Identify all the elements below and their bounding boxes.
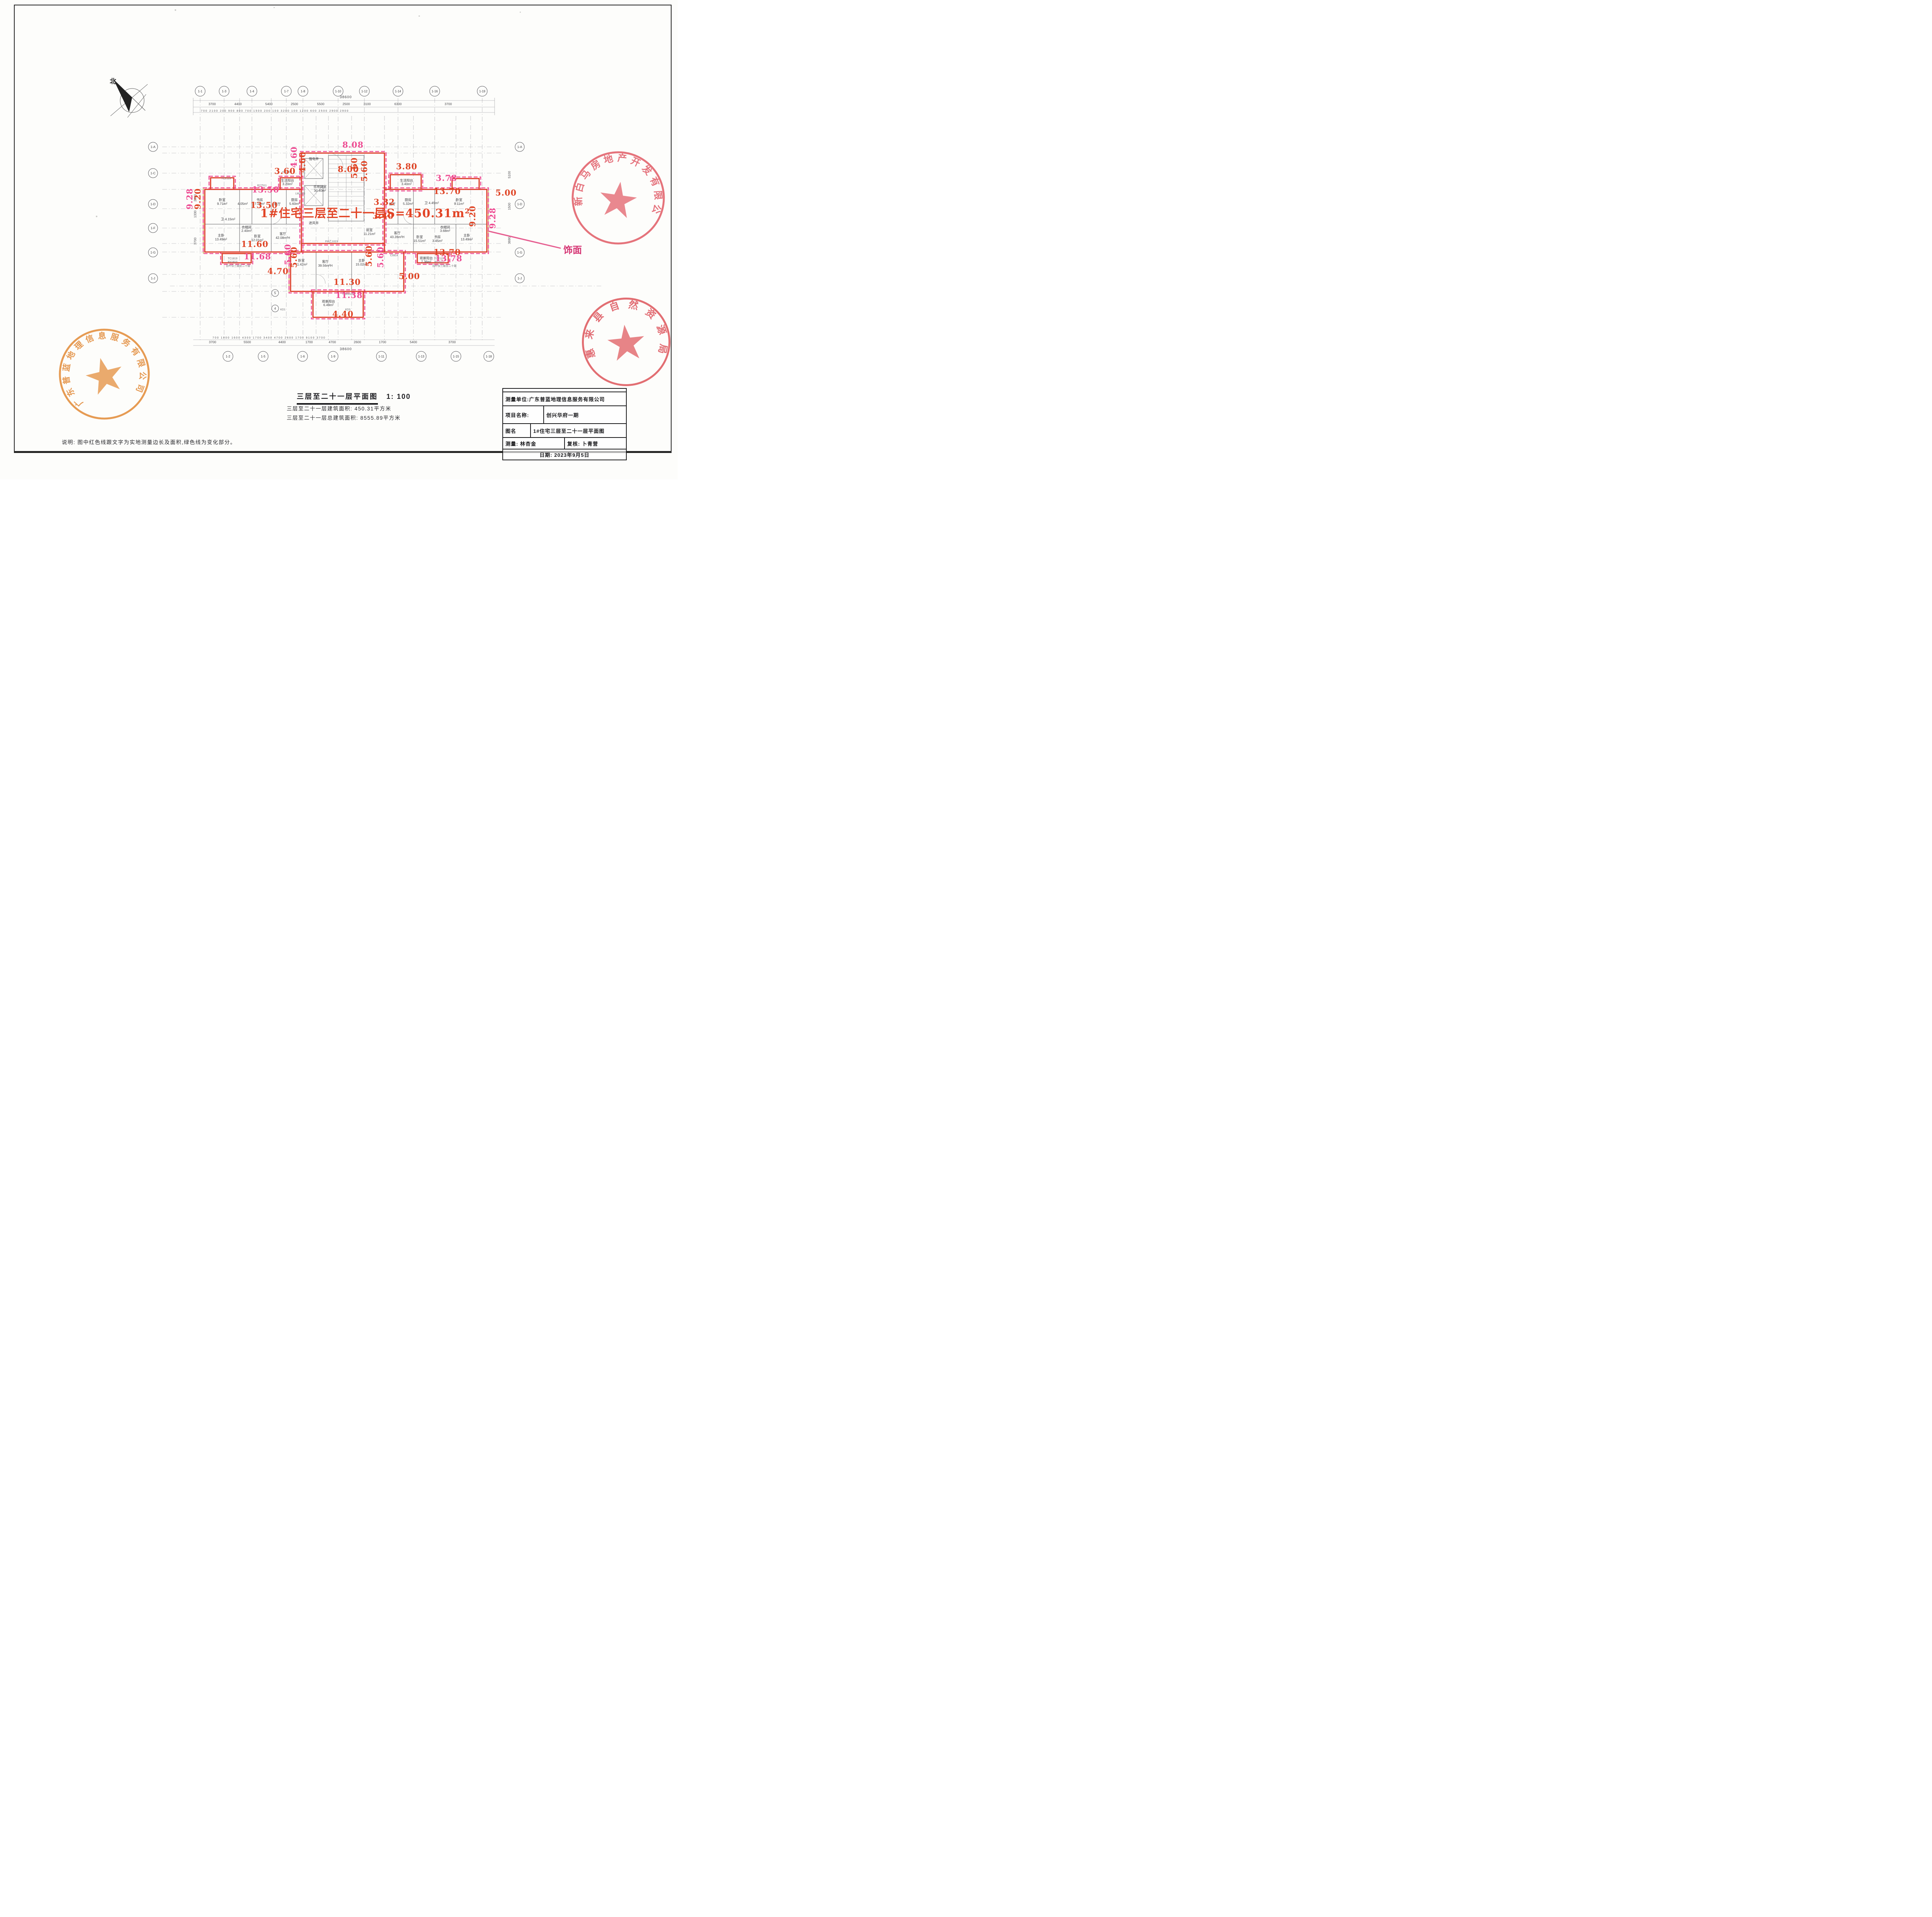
svg-text:13.70: 13.70 <box>434 186 461 196</box>
north-label: 北 <box>110 78 116 85</box>
svg-text:3700: 3700 <box>445 102 452 106</box>
svg-text:3.68m²: 3.68m² <box>440 229 451 233</box>
svg-text:15.51m²: 15.51m² <box>413 239 425 243</box>
scanned-floorplan-document: 北 <box>0 0 678 479</box>
svg-text:5500: 5500 <box>317 102 325 106</box>
svg-text:3.45m²: 3.45m² <box>432 239 443 243</box>
svg-text:13.78: 13.78 <box>435 254 463 263</box>
svg-text:KD1: KD1 <box>280 308 286 311</box>
svg-text:9.20: 9.20 <box>193 188 202 209</box>
svg-text:1-6: 1-6 <box>300 355 305 358</box>
svg-text:1700: 1700 <box>379 340 386 344</box>
svg-text:主卧: 主卧 <box>463 233 470 237</box>
svg-text:卫 4.45m²: 卫 4.45m² <box>424 201 439 205</box>
svg-text:1-C: 1-C <box>151 172 156 175</box>
svg-text:百叶仅三层至二十层: 百叶仅三层至二十层 <box>226 264 250 267</box>
svg-text:1-A: 1-A <box>517 145 522 149</box>
scan-speck <box>520 12 521 13</box>
svg-text:6.49m²: 6.49m² <box>323 303 334 307</box>
svg-text:2600: 2600 <box>354 340 361 344</box>
svg-text:9.71m²: 9.71m² <box>217 202 228 206</box>
svg-text:5.00: 5.00 <box>399 271 420 281</box>
scan-speck <box>175 9 176 11</box>
svg-text:5400: 5400 <box>265 102 273 106</box>
svg-text:1-J: 1-J <box>517 277 522 280</box>
svg-text:4.70: 4.70 <box>267 266 289 276</box>
svg-text:1-4: 1-4 <box>250 90 254 93</box>
svg-text:进风井: 进风井 <box>309 221 319 225</box>
svg-text:客厅: 客厅 <box>322 260 329 264</box>
svg-text:3.32: 3.32 <box>374 197 395 207</box>
developer-company-stamp: 新白马房地产开发有限公司 <box>561 141 675 255</box>
svg-text:1-7: 1-7 <box>284 90 289 93</box>
svg-text:3100: 3100 <box>364 102 371 106</box>
svg-text:4.60: 4.60 <box>298 152 307 173</box>
dimension-texts: 3700440054002500550025003100630037003700… <box>193 102 511 344</box>
svg-text:3700: 3700 <box>193 237 197 245</box>
svg-text:卧室: 卧室 <box>456 198 463 202</box>
stamp-star-icon <box>597 179 639 219</box>
svg-text:1-G: 1-G <box>517 251 522 254</box>
svg-text:5.60: 5.60 <box>376 247 385 268</box>
svg-text:LM2423: LM2423 <box>295 192 305 195</box>
svg-text:9.28: 9.28 <box>488 208 497 229</box>
measured-by: 测量: 林杏金 <box>503 438 564 449</box>
svg-text:8.08: 8.08 <box>342 140 364 150</box>
plan-title-line: 三层至二十一层平面图 1: 100 <box>297 391 411 405</box>
svg-text:1-14: 1-14 <box>395 90 401 93</box>
scan-speck <box>96 216 97 217</box>
svg-text:1-1: 1-1 <box>198 90 202 93</box>
floor-area-line: 三层至二十一层建筑面积: 450.31平方米 <box>287 404 401 414</box>
date: 日期: 2023年9月5日 <box>503 449 626 460</box>
svg-text:7.36m²: 7.36m² <box>421 260 432 264</box>
svg-text:1-8: 1-8 <box>301 90 305 93</box>
svg-text:厨房: 厨房 <box>405 198 411 202</box>
svg-text:百叶仅三层至二十层: 百叶仅三层至二十层 <box>432 264 457 267</box>
svg-text:TC1819: TC1819 <box>228 257 238 260</box>
svg-text:13.49m²: 13.49m² <box>215 237 227 241</box>
svg-text:1-D: 1-D <box>151 203 156 206</box>
svg-text:2500: 2500 <box>291 102 298 106</box>
svg-text:1700: 1700 <box>306 340 313 344</box>
svg-text:1-15: 1-15 <box>453 355 459 358</box>
svg-text:11.38: 11.38 <box>335 290 363 300</box>
svg-text:卧室: 卧室 <box>416 235 423 239</box>
svg-text:3.80: 3.80 <box>396 162 417 171</box>
svg-text:卫 4.15m²: 卫 4.15m² <box>221 217 235 221</box>
svg-text:4400: 4400 <box>279 340 286 344</box>
svg-text:1-D: 1-D <box>517 203 522 206</box>
svg-text:13.49m²: 13.49m² <box>461 237 473 241</box>
svg-text:2500: 2500 <box>343 102 350 106</box>
red-measurements: 8.088.003.6013.5013.504.604.605.605.603.… <box>185 140 517 319</box>
svg-text:1-F: 1-F <box>151 226 155 230</box>
svg-text:前室: 前室 <box>366 228 373 232</box>
natural-resources-bureau-stamp: 惠来县自然资源局 <box>574 290 678 394</box>
scan-speck <box>418 15 420 17</box>
svg-text:主卧: 主卧 <box>218 233 224 237</box>
svg-text:4: 4 <box>274 307 276 310</box>
svg-text:1-12: 1-12 <box>361 90 368 93</box>
svg-text:5: 5 <box>274 291 276 295</box>
svg-text:11.30: 11.30 <box>333 277 361 287</box>
area-summary: 三层至二十一层建筑面积: 450.31平方米 三层至二十一层总建筑面积: 855… <box>287 404 401 423</box>
svg-text:客厅: 客厅 <box>394 231 401 235</box>
scan-speck <box>274 7 275 8</box>
svg-text:11.68: 11.68 <box>244 252 271 261</box>
survey-unit: 测量单位:广东普蓝地理信息服务有限公司 <box>503 392 626 405</box>
svg-text:客厅: 客厅 <box>279 232 286 236</box>
svg-text:1-G: 1-G <box>150 251 155 254</box>
svg-text:5400: 5400 <box>410 340 417 344</box>
svg-text:书房: 书房 <box>434 235 440 239</box>
svg-text:43.28m²H: 43.28m²H <box>390 235 404 239</box>
legend-note: 说明: 图中红色线跟文字为实地测量边长及面积,绿色线为变化部分。 <box>62 438 236 446</box>
svg-text:卧室: 卧室 <box>219 198 226 202</box>
svg-text:5.32m²: 5.32m² <box>403 202 413 206</box>
svg-text:1-19: 1-19 <box>479 90 486 93</box>
title-block: 测量单位:广东普蓝地理信息服务有限公司 项目名称: 创兴华府一期 图名 1#住宅… <box>502 388 627 460</box>
svg-text:5.60: 5.60 <box>349 157 359 179</box>
svg-text:1-13: 1-13 <box>418 355 425 358</box>
svg-text:4.05m²: 4.05m² <box>238 202 248 206</box>
svg-text:11.60: 11.60 <box>241 239 269 249</box>
finish-label: 饰面 <box>563 245 582 255</box>
svg-text:1-18: 1-18 <box>486 355 492 358</box>
svg-text:1-A: 1-A <box>151 145 156 149</box>
dimension-lines <box>193 98 495 346</box>
svg-text:FM乙1023: FM乙1023 <box>325 240 338 243</box>
svg-text:厨房: 厨房 <box>291 198 298 202</box>
svg-text:3700: 3700 <box>209 340 216 344</box>
checked-by: 复核: 卜青营 <box>564 438 626 449</box>
project-name-value: 创兴华府一期 <box>544 406 626 423</box>
plan-scale: 1: 100 <box>386 393 411 400</box>
svg-text:3690: 3690 <box>507 237 511 244</box>
overall-dimension-top: 38600 <box>340 95 352 99</box>
svg-text:1-11: 1-11 <box>378 355 384 358</box>
svg-text:BY1810: BY1810 <box>228 261 238 264</box>
svg-text:30.40m²: 30.40m² <box>314 189 326 192</box>
svg-text:3700: 3700 <box>449 340 456 344</box>
svg-text:1-3: 1-3 <box>222 90 226 93</box>
svg-text:5100: 5100 <box>507 171 511 178</box>
svg-text:1-J: 1-J <box>151 277 155 280</box>
svg-text:5.00: 5.00 <box>495 188 517 197</box>
main-area-annotation: 1#住宅三层至二十一层S=450.31m² <box>260 207 470 220</box>
total-area-line: 三层至二十一层总建筑面积: 8555.89平方米 <box>287 414 401 423</box>
svg-text:TC2119: TC2119 <box>221 177 231 180</box>
svg-text:5.60: 5.60 <box>359 160 369 182</box>
svg-text:1-9: 1-9 <box>331 355 335 358</box>
svg-text:1330: 1330 <box>193 210 197 218</box>
svg-text:强电井: 强电井 <box>309 157 319 161</box>
svg-text:1-16: 1-16 <box>432 90 438 93</box>
svg-text:5.60m²: 5.60m² <box>289 202 300 206</box>
svg-text:39.56m²H: 39.56m²H <box>318 264 332 267</box>
svg-text:9.11m²: 9.11m² <box>454 202 464 206</box>
svg-text:2.40m²: 2.40m² <box>241 229 252 233</box>
detail-dimensions-top: 700 2100 200 900 800 700 1500 200 100 32… <box>201 110 349 112</box>
svg-text:42.08m²H: 42.08m²H <box>276 236 290 240</box>
svg-text:3700: 3700 <box>209 102 216 106</box>
svg-text:3.40m²: 3.40m² <box>401 182 412 186</box>
svg-text:C0814: C0814 <box>390 254 398 257</box>
svg-text:4400: 4400 <box>235 102 242 106</box>
svg-text:3.78: 3.78 <box>436 173 457 183</box>
svg-text:1500: 1500 <box>507 203 511 210</box>
drawing-name-label: 图名 <box>503 424 531 437</box>
stamp-star-icon <box>606 323 646 361</box>
svg-text:1-5: 1-5 <box>261 355 265 358</box>
svg-text:1-10: 1-10 <box>335 90 342 93</box>
floor-plan: 饰面 3700440054002500550025003100630037003… <box>147 58 607 390</box>
svg-text:合用前室: 合用前室 <box>313 185 327 189</box>
svg-text:卧室: 卧室 <box>254 234 261 238</box>
detail-dimensions-bottom: 700 1800 1600 4300 1700 3400 4700 2600 1… <box>213 337 326 339</box>
stamp-star-icon <box>82 354 126 397</box>
svg-text:4.40: 4.40 <box>332 309 354 319</box>
svg-text:卧室: 卧室 <box>298 259 305 262</box>
plan-title: 三层至二十一层平面图 <box>297 391 378 405</box>
project-name-label: 项目名称: <box>503 406 544 423</box>
svg-text:5500: 5500 <box>244 340 251 344</box>
svg-text:5.60: 5.60 <box>289 247 299 268</box>
drawing-name-value: 1#住宅三层至二十一层平面图 <box>531 424 626 437</box>
svg-text:1-2: 1-2 <box>226 355 230 358</box>
overall-dimension-bottom: 38600 <box>340 347 352 351</box>
svg-text:5.60: 5.60 <box>364 245 374 267</box>
title-block-spacer-row <box>503 389 626 392</box>
svg-text:3.20m²: 3.20m² <box>282 182 293 186</box>
svg-text:4700: 4700 <box>329 340 336 344</box>
svg-text:11.21m²: 11.21m² <box>364 232 376 236</box>
svg-text:6300: 6300 <box>395 102 402 106</box>
svg-text:13.50: 13.50 <box>252 185 279 194</box>
